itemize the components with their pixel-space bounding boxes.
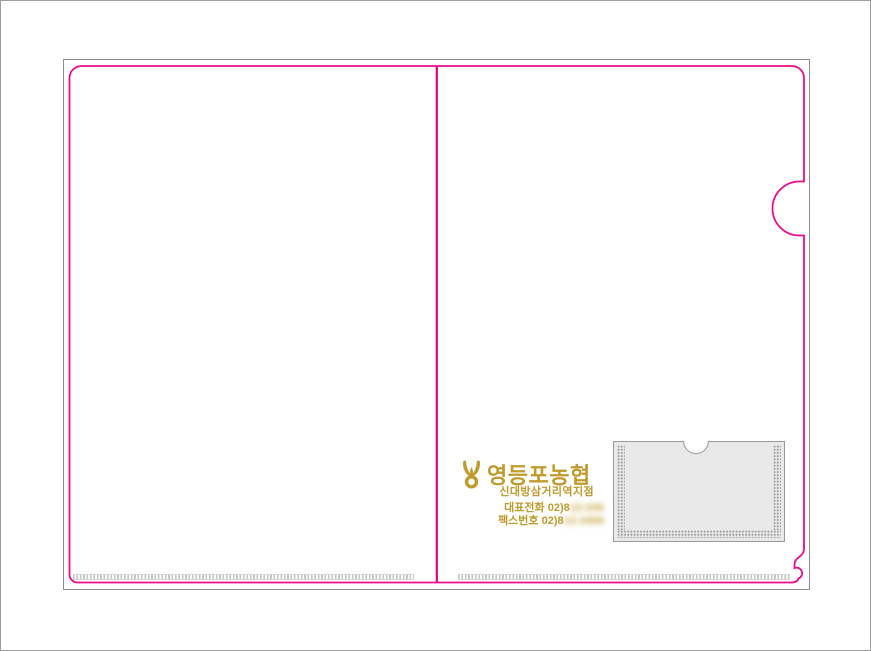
fax-line: 팩스번호 02)812-3456 [460, 512, 604, 528]
bottom-weld-seam-left [73, 574, 414, 580]
folder-print-proof-canvas: 영등포농협 신대방삼거리역지점 대표전화 02)812-345 팩스번호 02)… [0, 0, 871, 651]
business-card-pocket [613, 441, 785, 542]
fax-number-blurred: 12-3456 [564, 515, 604, 527]
pocket-weld-seam-right [773, 445, 781, 530]
folder-die-cut-lineart [1, 1, 871, 651]
pocket-weld-seam-bottom [617, 530, 781, 538]
bottom-weld-seam-right [458, 574, 790, 580]
pocket-weld-seam-left [617, 445, 625, 530]
fax-label: 팩스번호 02)8 [498, 515, 564, 527]
brand-branch-name: 신대방삼거리역지점 [460, 483, 594, 499]
pocket-thumb-notch [683, 441, 709, 454]
